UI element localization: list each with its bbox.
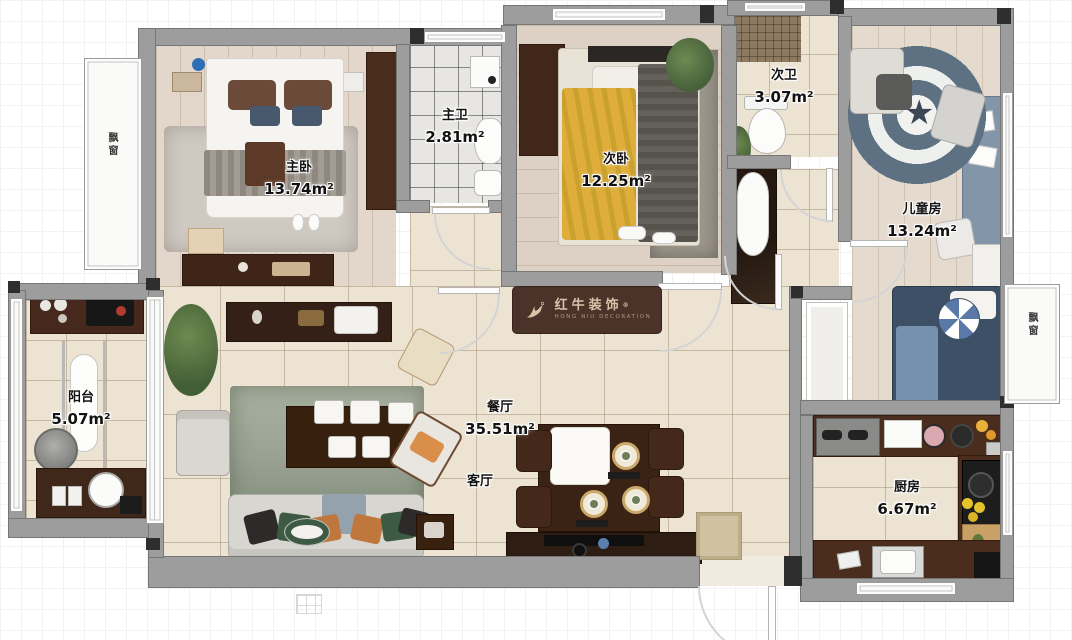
plate-2 — [580, 490, 608, 518]
label-master-bath: 主卫 2.81m² — [414, 106, 496, 148]
post-6 — [8, 281, 20, 293]
wardrobe-white-kids — [806, 302, 848, 416]
wall-balcony-bottom — [8, 518, 160, 538]
floor-plan: 红牛装饰® HONG NIU DECORATION ★ — [0, 0, 1072, 640]
window-kitchen-bottom — [856, 582, 956, 595]
lemon-1 — [962, 498, 973, 509]
canister-2 — [68, 486, 82, 506]
wall-right-second-bedroom — [721, 25, 737, 275]
pinwheel-decor — [938, 298, 980, 340]
desk-chair-kids — [876, 74, 912, 110]
tray-3 — [388, 402, 414, 424]
lemon-2 — [974, 502, 985, 513]
floor-entry-opening — [698, 556, 786, 586]
door-leaf-second-bedroom — [658, 283, 722, 290]
plate-1 — [612, 442, 640, 470]
cushion-blue-right — [292, 106, 322, 126]
page-margin-mark — [296, 594, 322, 614]
basin-vanity — [737, 172, 769, 256]
tv — [544, 535, 644, 546]
bay-window-left — [84, 58, 142, 270]
post-4 — [997, 8, 1011, 24]
balcony-jar-3 — [58, 314, 67, 323]
label-master-bedroom: 主卧 13.74m² — [249, 158, 349, 200]
post-8 — [146, 538, 160, 550]
wall-second-bath-bottom — [727, 155, 791, 169]
wash-basin-balcony — [88, 472, 124, 508]
lemon-3 — [968, 512, 978, 522]
brand-text-block: 红牛装饰® HONG NIU DECORATION — [555, 299, 652, 321]
window-kitchen-right — [1002, 450, 1013, 536]
napkin-2 — [576, 520, 608, 527]
label-second-bedroom: 次卧 12.25m² — [570, 150, 662, 192]
bay-window-left-label: 飘窗 — [104, 132, 119, 158]
dresser-decor-2 — [272, 262, 310, 276]
washer-knob — [488, 76, 496, 84]
sliding-door-balcony — [146, 296, 164, 524]
tray-5 — [362, 436, 390, 458]
dining-chair-4 — [648, 476, 684, 518]
post-entry — [784, 556, 802, 586]
brand-name-en: HONG NIU DECORATION — [555, 313, 652, 321]
label-balcony: 阳台 5.07m² — [38, 388, 124, 430]
cutting-board-white — [884, 420, 922, 448]
wall-masterbath-bottom-left — [396, 200, 430, 213]
bench-master — [188, 228, 224, 254]
napkin-1 — [608, 472, 640, 479]
plant-living — [164, 304, 218, 396]
dining-chair-3 — [648, 428, 684, 470]
bed-kids-panel — [896, 326, 938, 408]
bay-window-right — [1004, 284, 1060, 404]
shower-mosaic — [733, 16, 801, 62]
wall-top-kids — [838, 8, 1014, 26]
wall-bottom-main — [148, 556, 700, 588]
mat-entry — [696, 512, 742, 560]
pot-black — [950, 424, 974, 448]
post-5 — [146, 278, 160, 290]
tray-flowers — [334, 306, 378, 334]
slipper-left — [292, 214, 304, 231]
label-kids-room: 儿童房 13.24m² — [874, 200, 970, 242]
brand-name: 红牛装饰® — [555, 299, 652, 313]
armchair-left — [176, 410, 230, 476]
hood-handle-1 — [822, 430, 842, 440]
tray-2 — [350, 400, 380, 424]
nightstand-left — [172, 72, 202, 92]
cushion-blue-left — [250, 106, 280, 126]
label-living-room: 客厅 — [450, 472, 510, 492]
wall-second-bedroom-bottom — [501, 271, 663, 287]
decor-blue-console — [598, 538, 609, 549]
dining-mat — [550, 427, 610, 485]
console-tray — [298, 310, 324, 326]
shoes-1 — [618, 226, 646, 240]
washing-machine-masterbath — [470, 56, 500, 88]
appliance-red-knob — [116, 306, 126, 316]
toilet-secondbath — [748, 108, 786, 154]
bull-logo-icon — [523, 297, 549, 323]
balcony-jar-1 — [40, 300, 51, 311]
door-leaf-masterbath — [432, 207, 490, 214]
window-second-bath — [744, 2, 806, 12]
post-1 — [410, 28, 424, 44]
wardrobe-master — [366, 52, 398, 210]
ottoman-round — [284, 518, 330, 546]
wall-master-masterbath — [396, 44, 410, 206]
hood-handle-2 — [848, 430, 868, 440]
mat-black-balcony — [120, 496, 142, 514]
end-table-tray — [424, 522, 444, 538]
label-kitchen: 厨房 6.67m² — [864, 478, 950, 520]
slipper-right — [308, 214, 320, 231]
fruit-2 — [986, 430, 996, 440]
post-7 — [791, 286, 803, 298]
window-second-bedroom — [552, 8, 666, 21]
registered-mark: ® — [623, 302, 633, 309]
post-2 — [700, 5, 714, 23]
wall-kitchen-top — [800, 400, 1014, 415]
wall-hall-second-bedroom — [501, 25, 517, 287]
bay-window-right-label: 飘窗 — [1024, 312, 1039, 338]
label-second-bath: 次卫 3.07m² — [740, 66, 828, 108]
label-dining-room: 餐厅 35.51m² — [454, 398, 546, 440]
window-kids — [1002, 92, 1013, 238]
door-arc-entry — [698, 586, 770, 640]
brand-plaque: 红牛装饰® HONG NIU DECORATION — [512, 286, 662, 334]
console-vase — [252, 310, 262, 324]
shoes-2 — [652, 232, 676, 244]
dining-chair-2 — [516, 486, 552, 528]
decor-blue-ball — [192, 58, 205, 71]
fruit-1 — [976, 420, 988, 432]
burner — [968, 472, 994, 498]
pan-pink — [922, 424, 946, 448]
dresser-decor-1 — [238, 262, 248, 272]
appliance-balcony — [86, 298, 134, 326]
dresser-master — [182, 254, 334, 286]
door-leaf-master — [438, 287, 500, 294]
sink-masterbath — [474, 170, 502, 196]
basket-balcony — [34, 428, 78, 472]
canister-1 — [52, 486, 66, 506]
window-masterbath — [424, 31, 506, 43]
plant-second-bedroom — [666, 38, 714, 92]
tray-4 — [328, 436, 356, 458]
wall-balcony-top — [8, 283, 158, 300]
window-balcony — [10, 298, 23, 512]
tray-1 — [314, 400, 344, 424]
plate-3 — [622, 486, 650, 514]
post-3 — [830, 0, 844, 14]
sink-basin-kitchen — [880, 550, 916, 574]
